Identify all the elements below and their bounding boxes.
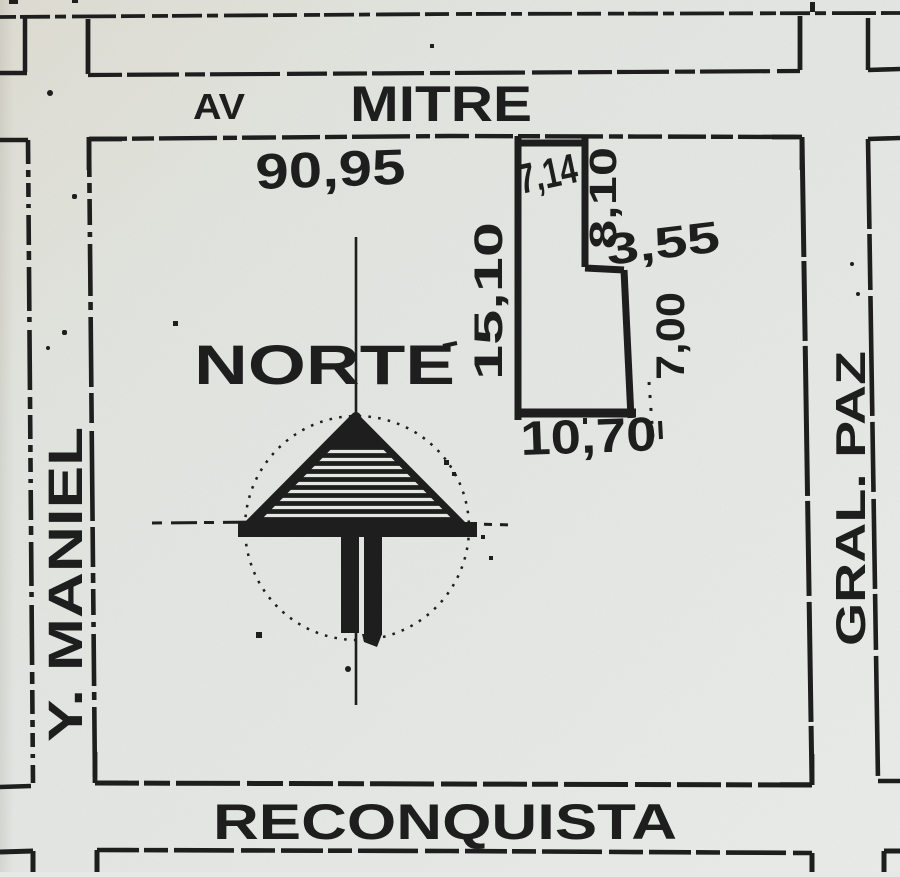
svg-text:GRAL. PAZ: GRAL. PAZ (827, 351, 874, 646)
svg-text:AV: AV (193, 86, 245, 127)
svg-text:90,95: 90,95 (254, 139, 406, 200)
svg-text:10,70: 10,70 (520, 408, 658, 466)
svg-text:NORTE: NORTE (194, 333, 455, 396)
svg-text:7,00: 7,00 (649, 292, 693, 380)
svg-text:15,10: 15,10 (467, 222, 511, 380)
svg-text:Y. MANIEL: Y. MANIEL (40, 427, 93, 742)
svg-text:MITRE: MITRE (350, 76, 532, 132)
svg-text:RECONQUISTA: RECONQUISTA (213, 794, 677, 850)
